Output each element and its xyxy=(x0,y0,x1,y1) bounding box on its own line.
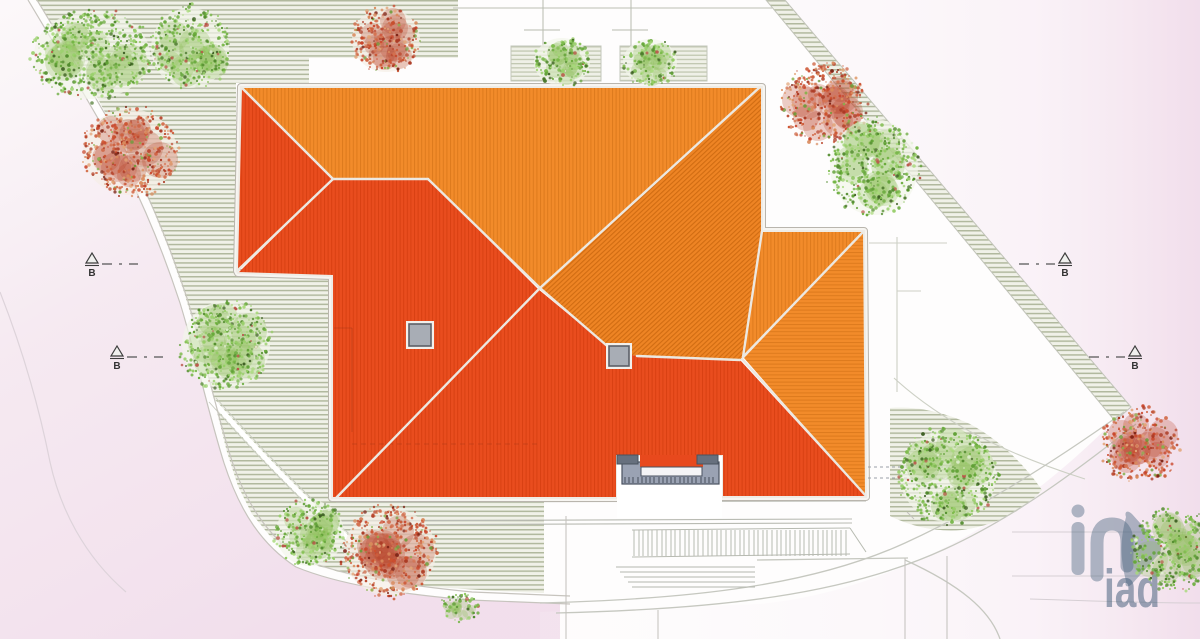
svg-text:B: B xyxy=(113,361,120,372)
svg-text:B: B xyxy=(88,268,95,279)
svg-text:B: B xyxy=(1131,361,1138,372)
svg-text:B: B xyxy=(1061,268,1068,279)
